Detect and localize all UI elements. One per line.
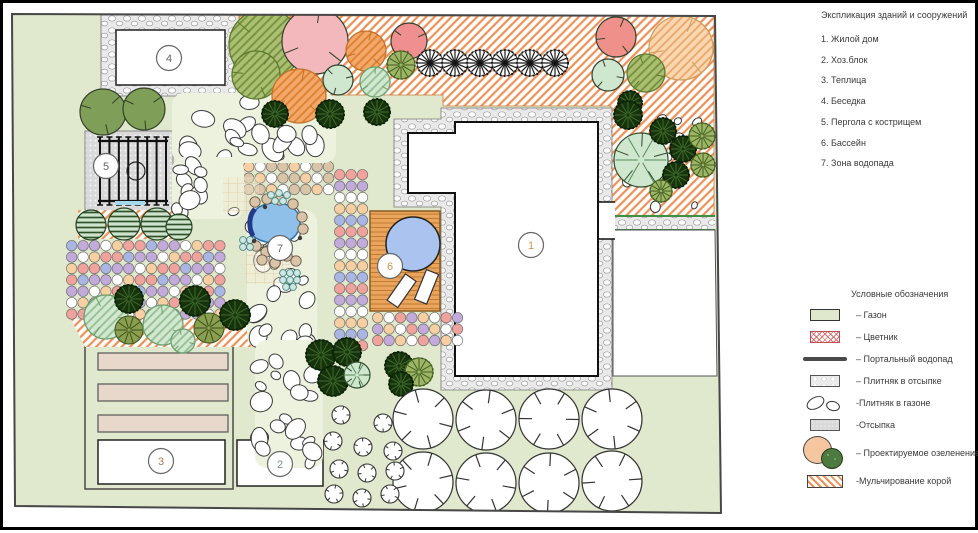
garden-plan: 1234567 xyxy=(3,3,763,533)
tree-spiky-dark xyxy=(316,100,344,128)
legend-item-lawn: – Газон xyxy=(801,304,978,326)
legend-label: – Проектируемое озеленение xyxy=(856,448,978,458)
water-feature-strip xyxy=(115,201,145,205)
courtyard xyxy=(613,230,717,376)
tree-hatch xyxy=(360,67,390,97)
tree-aster xyxy=(517,50,543,76)
orchard-tree xyxy=(519,453,579,513)
shrub xyxy=(332,406,350,424)
svg-text:6: 6 xyxy=(387,261,393,273)
house-passage xyxy=(597,202,615,239)
orchard-tree xyxy=(582,389,642,449)
legend-item-waterfall: – Портальный водопад xyxy=(801,348,978,370)
legend-panel: Условные обозначения – Газон– Цветник– П… xyxy=(801,289,978,492)
legend-list: – Газон– Цветник– Портальный водопад– Пл… xyxy=(801,304,978,492)
orchard-tree xyxy=(519,389,579,449)
explication-item: 4. Беседка xyxy=(821,91,978,112)
plan-label-2: 2 xyxy=(268,452,293,477)
tree-aster xyxy=(492,50,518,76)
legend-label: – Цветник xyxy=(856,332,898,342)
plan-label-6: 6 xyxy=(378,254,403,279)
tree-spiky-dark xyxy=(220,300,250,330)
orchard-tree xyxy=(393,389,453,449)
tree-spiky-dark xyxy=(614,101,642,129)
plan-label-1: 1 xyxy=(519,233,544,258)
plan-layers: 1234567 xyxy=(12,8,721,513)
legend-label: – Портальный водопад xyxy=(856,354,953,364)
orchard-tree xyxy=(582,451,642,511)
legend-item-flagfill: – Плитняк в отсыпке xyxy=(801,370,978,392)
landscape-plan-sheet: { "explication": { "title": "Экспликация… xyxy=(0,0,978,530)
tree-spiky-green xyxy=(689,123,715,149)
tree-spiky-dark xyxy=(262,101,288,127)
explication-item: 3. Теплица xyxy=(821,70,978,91)
shrub xyxy=(330,460,348,478)
legend-item-flower: – Цветник xyxy=(801,326,978,348)
shrub xyxy=(381,485,399,503)
tree-aster xyxy=(417,50,443,76)
tree-solid xyxy=(80,89,126,135)
legend-label: – Газон xyxy=(856,310,887,320)
svg-text:3: 3 xyxy=(158,456,164,468)
tree-striped xyxy=(76,210,106,240)
tree-hatch xyxy=(171,329,195,353)
explication-item: 5. Пергола с кострищем xyxy=(821,112,978,133)
tree-spiky-dark xyxy=(318,366,348,396)
legend-label: -Отсыпка xyxy=(856,420,895,430)
legend-item-gravel: -Отсыпка xyxy=(801,414,978,436)
orchard-tree xyxy=(456,453,516,513)
explication-item: 1. Жилой дом xyxy=(821,29,978,50)
svg-text:1: 1 xyxy=(528,240,534,252)
svg-text:4: 4 xyxy=(166,53,172,65)
explication-item: 6. Бассейн xyxy=(821,133,978,154)
shrub xyxy=(374,414,392,432)
explication-list: 1. Жилой дом2. Хоз.блок3. Теплица4. Бесе… xyxy=(821,29,978,174)
tree-solid xyxy=(596,17,636,57)
tree-leafy-mint xyxy=(344,362,370,388)
garden-bed xyxy=(98,415,228,432)
tree-hatch xyxy=(627,54,665,92)
orchard-tree xyxy=(456,390,516,450)
explication-item: 2. Хоз.блок xyxy=(821,50,978,71)
tree-aster xyxy=(442,50,468,76)
tree-hatch xyxy=(346,31,386,71)
stone-strip-right xyxy=(609,216,715,230)
legend-item-mulch: -Мульчирование корой xyxy=(801,470,978,492)
shrub xyxy=(386,462,404,480)
green-swatch-icon xyxy=(801,436,849,470)
tree-spiky-green xyxy=(650,180,672,202)
tree-spiky-olive xyxy=(115,316,143,344)
tree-spiky-dark xyxy=(364,99,390,125)
mulch-swatch-icon xyxy=(801,475,849,488)
tree-spiky-dark xyxy=(650,118,676,144)
tree-striped xyxy=(166,214,192,240)
tree-solid xyxy=(123,88,165,130)
plan-label-3: 3 xyxy=(149,449,174,474)
shrub xyxy=(358,464,376,482)
garden-bed xyxy=(98,384,228,401)
tree-solid xyxy=(323,65,353,95)
flower-swatch-icon xyxy=(801,331,849,343)
tree-solid xyxy=(592,59,624,91)
legend-label: – Плитняк в отсыпке xyxy=(856,376,942,386)
shrub xyxy=(384,442,402,460)
explication-item: 7. Зона водопада xyxy=(821,153,978,174)
legend-title: Условные обозначения xyxy=(851,289,978,299)
lawn-swatch-icon xyxy=(801,309,849,321)
shrub xyxy=(353,489,371,507)
plan-label-4: 4 xyxy=(157,46,182,71)
tree-aster xyxy=(542,50,568,76)
tree-aster xyxy=(467,50,493,76)
plan-label-7: 7 xyxy=(268,236,293,261)
garden-bed xyxy=(98,353,228,370)
legend-item-flaglawn: -Плитняк в газоне xyxy=(801,392,978,414)
flaglawn-swatch-icon xyxy=(801,396,849,411)
legend-label: -Мульчирование корой xyxy=(856,476,951,486)
explication-panel: Экспликация зданий и сооружений 1. Жилой… xyxy=(821,9,978,174)
tree-spiky-dark xyxy=(115,285,143,313)
svg-text:5: 5 xyxy=(103,161,109,173)
tree-spiky-dark xyxy=(180,286,210,316)
tree-spiky-green xyxy=(387,51,415,79)
waterfall-swatch-icon xyxy=(801,357,849,361)
svg-text:7: 7 xyxy=(277,243,283,255)
legend-item-green: – Проектируемое озеленение xyxy=(801,436,978,470)
gravel-swatch-icon xyxy=(801,419,849,431)
shrub xyxy=(325,485,343,503)
plan-label-5: 5 xyxy=(94,154,119,179)
shrub xyxy=(354,438,372,456)
flagfill-swatch-icon xyxy=(801,375,849,387)
tree-solid xyxy=(282,8,348,74)
tree-spiky-green xyxy=(691,153,715,177)
legend-label: -Плитняк в газоне xyxy=(856,398,930,408)
svg-text:2: 2 xyxy=(277,459,283,471)
shrub xyxy=(324,432,342,450)
orchard-tree xyxy=(393,452,453,512)
tree-striped xyxy=(108,208,140,240)
explication-title: Экспликация зданий и сооружений xyxy=(821,9,978,22)
